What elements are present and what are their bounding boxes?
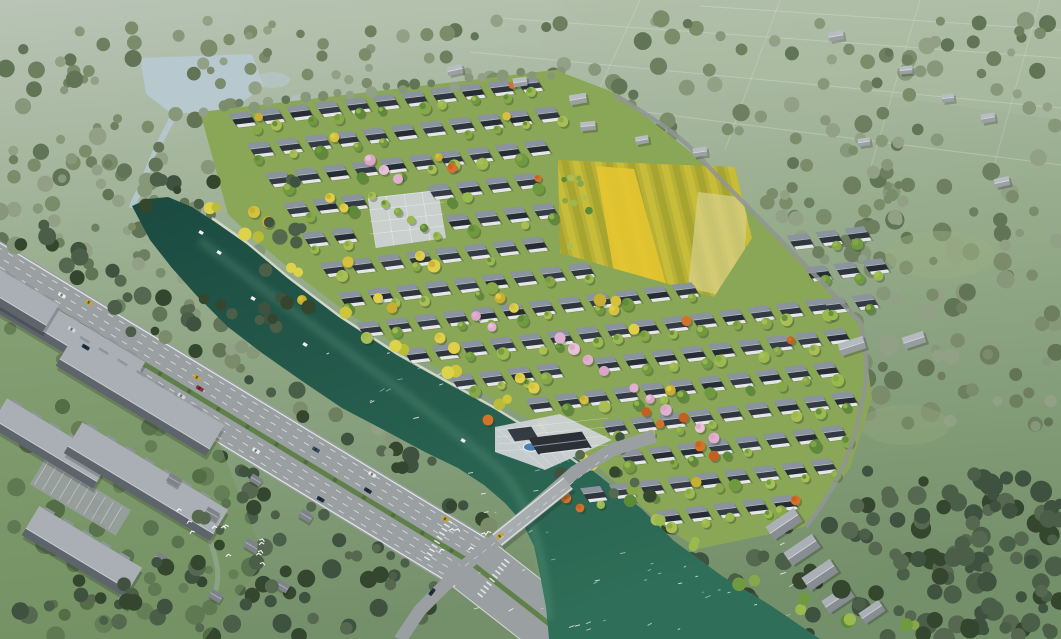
tree-highlight (478, 159, 484, 165)
tree (45, 196, 60, 211)
median-hedge (362, 495, 366, 499)
tree (126, 594, 143, 611)
tree-highlight (540, 347, 544, 351)
tree-highlight (255, 156, 260, 161)
tree (427, 456, 436, 465)
tree (490, 15, 502, 27)
tree (897, 195, 909, 207)
tree (56, 135, 65, 144)
tree (195, 623, 204, 632)
tree (244, 375, 253, 384)
tree-highlight (630, 325, 635, 330)
tree-highlight (682, 317, 687, 322)
tree-highlight (810, 441, 816, 447)
tree (317, 38, 329, 50)
median-hedge (304, 460, 308, 464)
water-sparkle (546, 532, 549, 533)
tree (990, 501, 1001, 512)
tree (359, 48, 372, 61)
tree (297, 570, 315, 588)
tree-highlight (696, 442, 701, 447)
median-hedge (449, 549, 453, 553)
tree-highlight (853, 239, 859, 245)
tree (785, 46, 799, 60)
tree (927, 584, 942, 599)
tree (449, 82, 459, 92)
tree-highlight (706, 388, 712, 394)
tree-highlight (458, 322, 462, 326)
tree (398, 85, 407, 94)
tree (993, 253, 1011, 271)
tree (207, 67, 215, 75)
tree (977, 69, 987, 79)
tree (879, 335, 899, 355)
tree (263, 48, 272, 57)
tree (1044, 417, 1053, 426)
tree (609, 466, 620, 477)
tree (910, 551, 926, 567)
tree-highlight (577, 505, 581, 509)
tree (235, 340, 248, 353)
tree (832, 580, 851, 599)
tree (12, 602, 30, 620)
tree (841, 522, 858, 539)
tree-highlight (558, 117, 564, 123)
tree (921, 304, 938, 321)
tree (1009, 368, 1022, 381)
tree (1002, 503, 1018, 519)
tree-highlight (788, 337, 792, 341)
tree (139, 199, 153, 213)
tree-highlight (669, 331, 674, 336)
tree-highlight (253, 126, 258, 131)
tree-highlight (395, 209, 399, 213)
tree (389, 340, 401, 352)
tree (6, 202, 21, 217)
tree (79, 145, 92, 158)
tree-highlight (541, 373, 547, 379)
tree-highlight (448, 198, 453, 203)
tree (96, 38, 110, 52)
tree (38, 220, 49, 231)
tree-highlight (356, 109, 361, 114)
tree-highlight (792, 496, 797, 501)
tree (900, 618, 913, 631)
tree (908, 486, 927, 505)
tree-highlight (503, 95, 508, 100)
tree (318, 91, 328, 101)
tree (105, 264, 119, 278)
tree (300, 92, 311, 103)
tree-highlight (816, 409, 822, 415)
tree-highlight (392, 328, 398, 334)
tree-highlight (600, 367, 605, 372)
tree (44, 600, 55, 611)
tree (547, 72, 554, 79)
tree (322, 559, 341, 578)
tree (15, 238, 28, 251)
tree (296, 30, 305, 39)
tree-highlight (595, 295, 601, 301)
tree (936, 17, 945, 26)
tree (280, 296, 294, 310)
tree (134, 287, 152, 305)
tree (1023, 387, 1034, 398)
tree (937, 179, 953, 195)
tree (440, 50, 453, 63)
tree (409, 79, 420, 90)
tree-highlight (284, 184, 290, 190)
tree-highlight (594, 338, 599, 343)
tree (944, 549, 962, 567)
tree (366, 86, 378, 98)
tree (1007, 48, 1015, 56)
tree (541, 22, 551, 32)
tree (814, 18, 825, 29)
tree (1029, 63, 1045, 79)
tree (273, 614, 292, 633)
tree (868, 585, 884, 601)
tree (446, 500, 457, 511)
tree (553, 16, 568, 31)
tree (213, 343, 228, 358)
tree (96, 178, 106, 188)
tree-highlight (680, 414, 685, 419)
tree (937, 372, 946, 381)
tree (1047, 534, 1058, 545)
tree-highlight (534, 184, 540, 190)
tree (734, 126, 743, 135)
tree-highlight (249, 207, 255, 213)
tree-highlight (380, 139, 384, 143)
tree (125, 21, 138, 34)
tree (156, 174, 168, 186)
tree (634, 32, 652, 50)
tree-highlight (677, 427, 681, 431)
tree (787, 182, 798, 193)
tree (892, 136, 904, 148)
tree (257, 487, 271, 501)
tree (850, 499, 864, 513)
tree-highlight (600, 402, 606, 408)
tree (971, 531, 988, 548)
tree-highlight (842, 436, 848, 442)
tree (981, 562, 993, 574)
tree (1016, 591, 1027, 602)
tree-highlight (670, 460, 674, 464)
tree (340, 307, 352, 319)
tree (389, 572, 397, 580)
tree (988, 490, 998, 500)
tree (876, 107, 889, 120)
tree-highlight (527, 88, 532, 93)
median-hedge (158, 371, 162, 375)
tree (385, 579, 396, 590)
tree (567, 243, 573, 249)
tree (259, 263, 273, 277)
tree-highlight (585, 275, 590, 280)
tree (775, 209, 789, 223)
tree (918, 476, 928, 486)
tree (132, 257, 145, 270)
tree (941, 38, 954, 51)
tree-highlight (472, 96, 477, 101)
tree (769, 35, 781, 47)
tree (151, 557, 162, 568)
tree (420, 28, 433, 41)
tree-highlight (358, 173, 364, 179)
tree (301, 300, 316, 315)
tree (1006, 190, 1019, 203)
tree (112, 195, 125, 208)
tree (158, 330, 172, 344)
tree (370, 599, 388, 617)
tree-highlight (369, 193, 373, 197)
tree-highlight (866, 305, 871, 310)
tree-highlight (624, 462, 630, 468)
tree (843, 44, 854, 55)
tree-highlight (498, 382, 502, 386)
tree (151, 327, 160, 336)
tree (848, 146, 858, 156)
tree (582, 195, 587, 200)
tree-highlight (702, 359, 707, 364)
tree (249, 555, 264, 570)
tree-highlight (374, 294, 379, 299)
tree (341, 433, 354, 446)
tree (226, 308, 237, 319)
tree (715, 31, 725, 41)
tree (992, 396, 1002, 406)
tree-highlight (272, 121, 277, 126)
tree (1024, 555, 1038, 569)
tree-highlight (463, 193, 468, 198)
tree (983, 349, 993, 359)
tree (215, 78, 226, 89)
tree (199, 294, 209, 304)
tree-highlight (546, 277, 551, 282)
tree-highlight (584, 356, 589, 361)
tree-highlight (828, 311, 833, 316)
tree (365, 25, 377, 37)
tree (346, 91, 355, 100)
tree (972, 16, 987, 31)
tree (91, 164, 102, 175)
tree (878, 362, 888, 372)
tree (1000, 240, 1011, 251)
median-hedge (391, 513, 395, 517)
tree-highlight (746, 386, 750, 390)
tree (187, 67, 201, 81)
tree (912, 124, 924, 136)
tree (441, 366, 454, 379)
tree-highlight (449, 343, 455, 349)
tree (901, 178, 915, 192)
median-hedge (274, 442, 278, 446)
tree-highlight (529, 383, 535, 389)
tree (194, 199, 204, 209)
tree-highlight (523, 122, 527, 126)
tree (464, 73, 473, 82)
tree (37, 176, 53, 192)
tree-highlight (765, 511, 769, 515)
tree (979, 625, 989, 635)
tree-highlight (696, 424, 701, 429)
tree-highlight (337, 271, 343, 277)
tree-highlight (354, 143, 358, 147)
tree (246, 500, 261, 515)
tree (758, 550, 770, 562)
tree (266, 387, 276, 397)
tree (986, 51, 1001, 66)
tree (264, 217, 275, 228)
tree (562, 198, 568, 204)
tree (1014, 26, 1024, 36)
tree (903, 88, 917, 102)
tree (1035, 585, 1047, 597)
tree (64, 53, 76, 65)
tree-highlight (503, 113, 507, 117)
tree-highlight (634, 401, 639, 406)
tree (153, 142, 164, 153)
tree (867, 166, 880, 179)
tree-highlight (745, 449, 749, 453)
tree (576, 176, 581, 181)
tree (9, 155, 18, 164)
tree (400, 558, 409, 567)
tree (821, 517, 838, 534)
tree-highlight (661, 405, 667, 411)
tree (238, 228, 251, 241)
tree (74, 588, 89, 603)
tree-highlight (759, 352, 765, 358)
tree-highlight (388, 304, 393, 309)
tree-highlight (666, 386, 671, 391)
tree-highlight (488, 323, 493, 328)
tree (286, 263, 296, 273)
tree (766, 188, 778, 200)
tree (254, 315, 264, 325)
tree-highlight (290, 151, 294, 155)
tree (103, 159, 112, 168)
tree-highlight (715, 356, 721, 362)
tree-highlight (810, 346, 815, 351)
tree (1021, 613, 1040, 632)
tree (156, 268, 166, 278)
tree-highlight (340, 204, 345, 209)
tree (1030, 421, 1040, 431)
aerial-render (0, 0, 1061, 639)
tree-highlight (315, 147, 321, 153)
tree (936, 500, 950, 514)
tree (736, 44, 748, 56)
tree (927, 60, 943, 76)
tree (26, 81, 42, 97)
tree (281, 95, 290, 104)
tree (689, 542, 698, 551)
tree (173, 186, 181, 194)
tree (895, 181, 903, 189)
tree (85, 267, 98, 280)
tree-highlight (730, 480, 736, 486)
tree-highlight (494, 126, 498, 130)
tree (199, 107, 209, 117)
tree-highlight (344, 241, 349, 246)
tree (784, 97, 800, 113)
tree (967, 35, 980, 48)
tree-highlight (646, 395, 651, 400)
tree (219, 100, 230, 111)
median-hedge (216, 407, 220, 411)
tree-highlight (468, 226, 474, 232)
tree-highlight (379, 107, 383, 111)
tree-highlight (484, 416, 489, 421)
tree (1044, 395, 1056, 407)
tree (860, 80, 873, 93)
tree (749, 575, 761, 587)
tree-highlight (724, 452, 728, 456)
tree-highlight (434, 233, 438, 237)
tree (993, 213, 1007, 227)
tree (268, 20, 276, 28)
tree-highlight (510, 304, 515, 309)
tree-highlight (762, 319, 768, 325)
tree-highlight (311, 246, 315, 250)
tree (157, 599, 173, 615)
tree (240, 598, 252, 610)
tree (206, 175, 220, 189)
scene-canvas (0, 0, 1061, 639)
tree (265, 579, 279, 593)
tree (1029, 206, 1039, 216)
tree (609, 488, 619, 498)
tree (876, 135, 888, 147)
tree (679, 80, 695, 96)
tree (918, 359, 935, 376)
tree-highlight (843, 404, 848, 409)
tree (790, 133, 802, 145)
tree (307, 613, 318, 624)
tree (273, 533, 287, 547)
tree (927, 612, 943, 628)
tree (340, 622, 353, 635)
tree-highlight (420, 103, 426, 109)
tree (223, 34, 234, 45)
tree (788, 211, 803, 226)
tree-highlight (716, 485, 721, 490)
tree (859, 529, 871, 541)
tree (155, 289, 172, 306)
tree-highlight (630, 384, 635, 389)
tree-highlight (498, 348, 504, 354)
tree (955, 536, 970, 551)
tree (351, 550, 362, 561)
tree (173, 30, 185, 42)
tree (306, 502, 316, 512)
tree (83, 65, 95, 77)
tree (125, 326, 136, 337)
tree (186, 304, 195, 313)
tree (874, 199, 885, 210)
tree-highlight (516, 374, 521, 379)
tree (28, 158, 41, 171)
tree-highlight (448, 164, 453, 169)
tree (123, 292, 133, 302)
tree (585, 207, 593, 215)
tree (332, 533, 346, 547)
tree (1015, 470, 1031, 486)
tree-highlight (408, 217, 412, 221)
